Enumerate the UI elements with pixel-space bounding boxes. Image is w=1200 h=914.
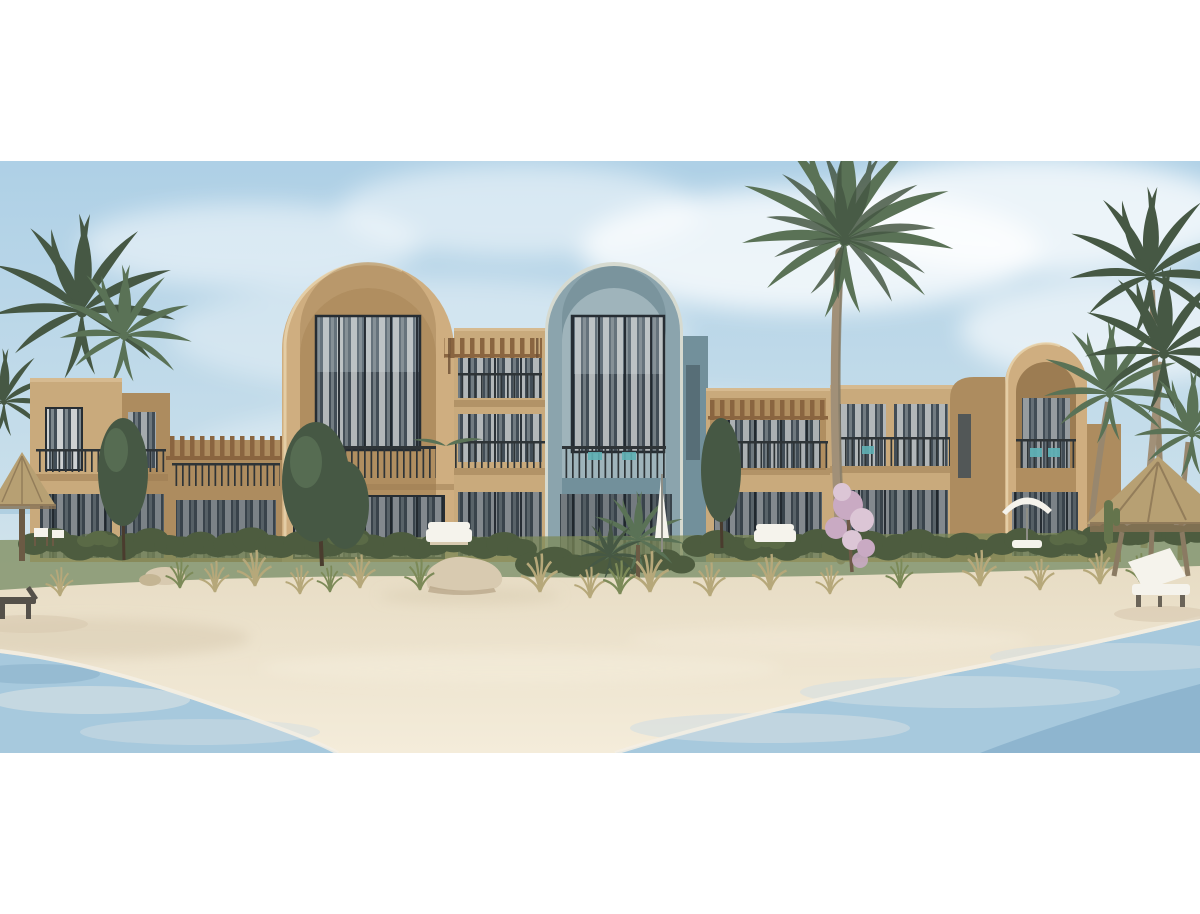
mid-upper-windows — [458, 358, 542, 398]
blue-tower-tall-window — [572, 316, 664, 452]
blue-tower-balcony-railing — [562, 448, 666, 478]
scene-svg — [0, 161, 1200, 753]
resort-rendering-photo — [0, 161, 1200, 753]
patio-sofa-right — [754, 524, 796, 542]
patio-sofa-left — [426, 522, 472, 545]
page — [0, 0, 1200, 914]
tan-wing-balcony-railing — [832, 438, 953, 466]
right-tower-balcony-railing — [1016, 440, 1076, 468]
